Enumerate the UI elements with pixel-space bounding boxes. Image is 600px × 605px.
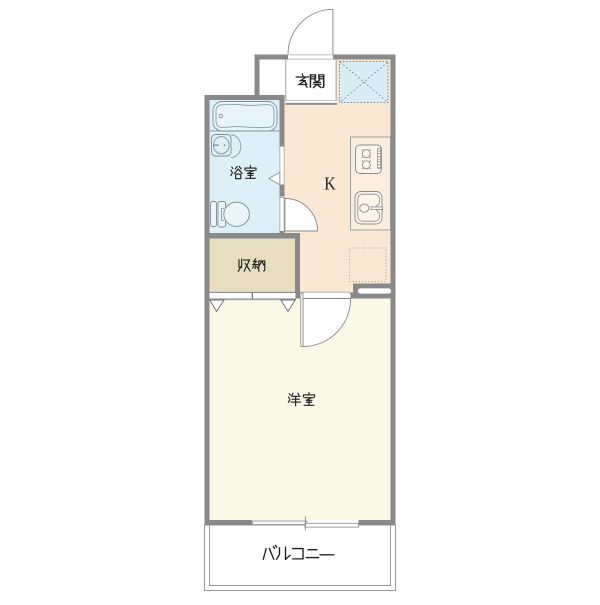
svg-text:K: K bbox=[324, 174, 336, 194]
